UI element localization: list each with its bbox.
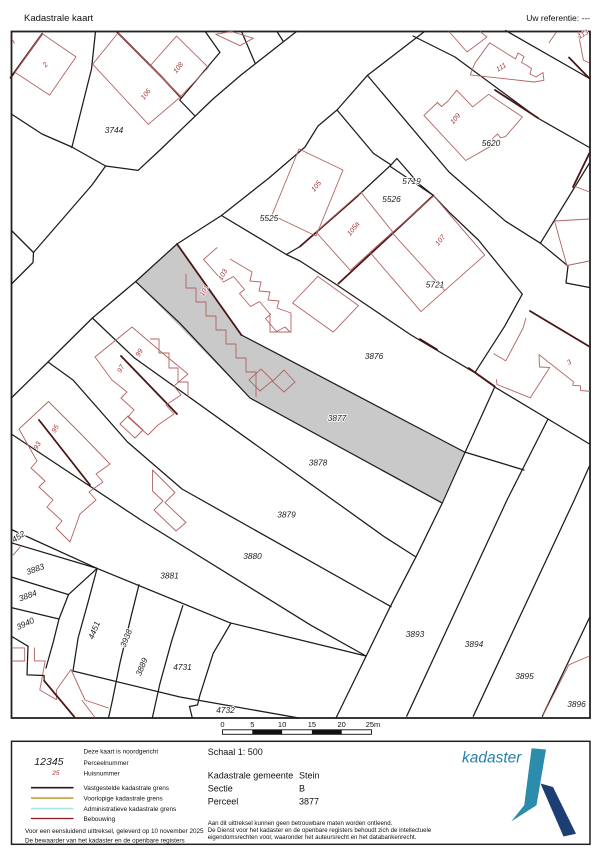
svg-text:5525: 5525 bbox=[260, 213, 279, 223]
svg-text:4732: 4732 bbox=[216, 705, 235, 715]
svg-text:5526: 5526 bbox=[382, 194, 401, 204]
svg-text:12345: 12345 bbox=[34, 756, 63, 768]
svg-text:Administratieve kadastrale gre: Administratieve kadastrale grens bbox=[84, 806, 177, 813]
svg-text:3881: 3881 bbox=[160, 571, 178, 581]
svg-text:De Dienst voor het kadaster en: De Dienst voor het kadaster en de openba… bbox=[208, 827, 432, 834]
svg-text:Schaal 1: 500: Schaal 1: 500 bbox=[208, 747, 263, 757]
svg-text:20: 20 bbox=[338, 720, 346, 729]
svg-text:Voor een eensluidend uittrekse: Voor een eensluidend uittreksel, gelever… bbox=[25, 828, 204, 835]
svg-text:Sectie: Sectie bbox=[208, 784, 233, 794]
svg-text:3893: 3893 bbox=[406, 629, 425, 639]
svg-text:B: B bbox=[299, 784, 305, 794]
svg-text:De bewaarder van het kadaster: De bewaarder van het kadaster en de open… bbox=[25, 838, 185, 845]
svg-text:Deze kaart is noordgericht: Deze kaart is noordgericht bbox=[84, 749, 159, 756]
svg-text:15: 15 bbox=[308, 720, 316, 729]
svg-text:0: 0 bbox=[220, 720, 224, 729]
svg-text:3879: 3879 bbox=[277, 510, 296, 520]
svg-text:3895: 3895 bbox=[515, 671, 534, 681]
svg-text:4731: 4731 bbox=[173, 662, 191, 672]
svg-text:3880: 3880 bbox=[243, 551, 262, 561]
svg-text:Perceelnummer: Perceelnummer bbox=[84, 760, 130, 767]
svg-text:3877: 3877 bbox=[328, 413, 347, 423]
svg-text:Aan dit uittreksel kunnen geen: Aan dit uittreksel kunnen geen betrouwba… bbox=[208, 820, 393, 827]
svg-text:kadaster: kadaster bbox=[462, 750, 522, 767]
svg-text:5: 5 bbox=[250, 720, 254, 729]
svg-text:25m: 25m bbox=[366, 720, 381, 729]
svg-text:Voorlopige kadastrale grens: Voorlopige kadastrale grens bbox=[84, 796, 163, 803]
svg-text:25: 25 bbox=[51, 770, 60, 777]
svg-text:3744: 3744 bbox=[105, 125, 124, 135]
svg-text:5620: 5620 bbox=[482, 138, 501, 148]
svg-text:eigendomsrechten voor, waarond: eigendomsrechten voor, waaronder het aut… bbox=[208, 834, 417, 841]
svg-text:Stein: Stein bbox=[299, 771, 320, 781]
svg-text:5721: 5721 bbox=[426, 280, 444, 290]
svg-text:3896: 3896 bbox=[567, 699, 586, 709]
svg-text:10: 10 bbox=[278, 720, 286, 729]
svg-text:3876: 3876 bbox=[365, 351, 384, 361]
svg-text:5719: 5719 bbox=[402, 176, 421, 186]
svg-text:3877: 3877 bbox=[299, 797, 319, 807]
svg-text:Kadastrale gemeente: Kadastrale gemeente bbox=[208, 771, 294, 781]
svg-text:Vastgestelde kadastrale grens: Vastgestelde kadastrale grens bbox=[84, 785, 170, 792]
svg-text:3878: 3878 bbox=[309, 458, 328, 468]
svg-text:Huisnummer: Huisnummer bbox=[84, 771, 121, 778]
svg-text:Kadastrale kaart: Kadastrale kaart bbox=[24, 13, 94, 24]
svg-text:3894: 3894 bbox=[465, 639, 484, 649]
svg-text:Bebouwing: Bebouwing bbox=[84, 816, 116, 823]
svg-text:Perceel: Perceel bbox=[208, 797, 239, 807]
svg-text:Uw referentie: ---: Uw referentie: --- bbox=[526, 13, 590, 23]
